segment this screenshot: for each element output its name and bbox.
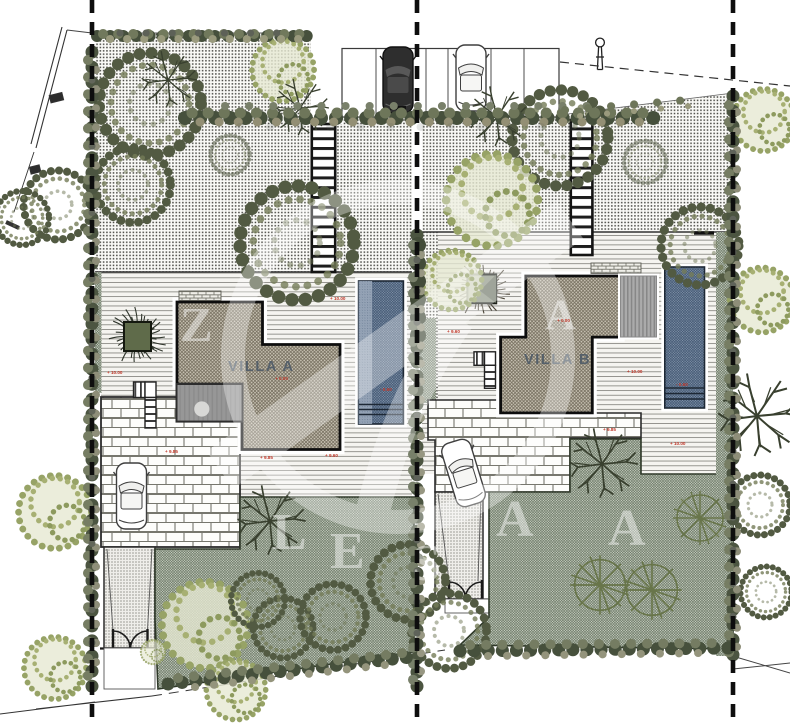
svg-text:+ 9.85: + 9.85 [603,427,616,432]
svg-text:+ 9.60: + 9.60 [447,329,460,334]
svg-text:S: S [0,501,17,558]
svg-text:A: A [496,491,534,548]
svg-text:A: A [608,500,646,557]
svg-text:+ 9.60: + 9.60 [325,453,338,458]
svg-text:+ 10.00: + 10.00 [670,441,686,446]
svg-text:L: L [272,504,307,561]
svg-text:+ 0.00: + 0.00 [557,318,570,323]
svg-text:+ 10.00: + 10.00 [627,369,643,374]
svg-text:+ 9.85: + 9.85 [165,449,178,454]
svg-text:E: E [330,523,365,580]
svg-text:A: A [545,292,576,339]
svg-text:- 0.60: - 0.60 [380,387,392,392]
svg-text:- 0.60: - 0.60 [676,382,688,387]
svg-text:+ 9.85: + 9.85 [260,455,273,460]
svg-text:+ 10.00: + 10.00 [330,296,346,301]
svg-text:+ 10.00: + 10.00 [107,370,123,375]
svg-text:+ 0.00: + 0.00 [275,376,288,381]
svg-text:Z: Z [180,297,213,352]
